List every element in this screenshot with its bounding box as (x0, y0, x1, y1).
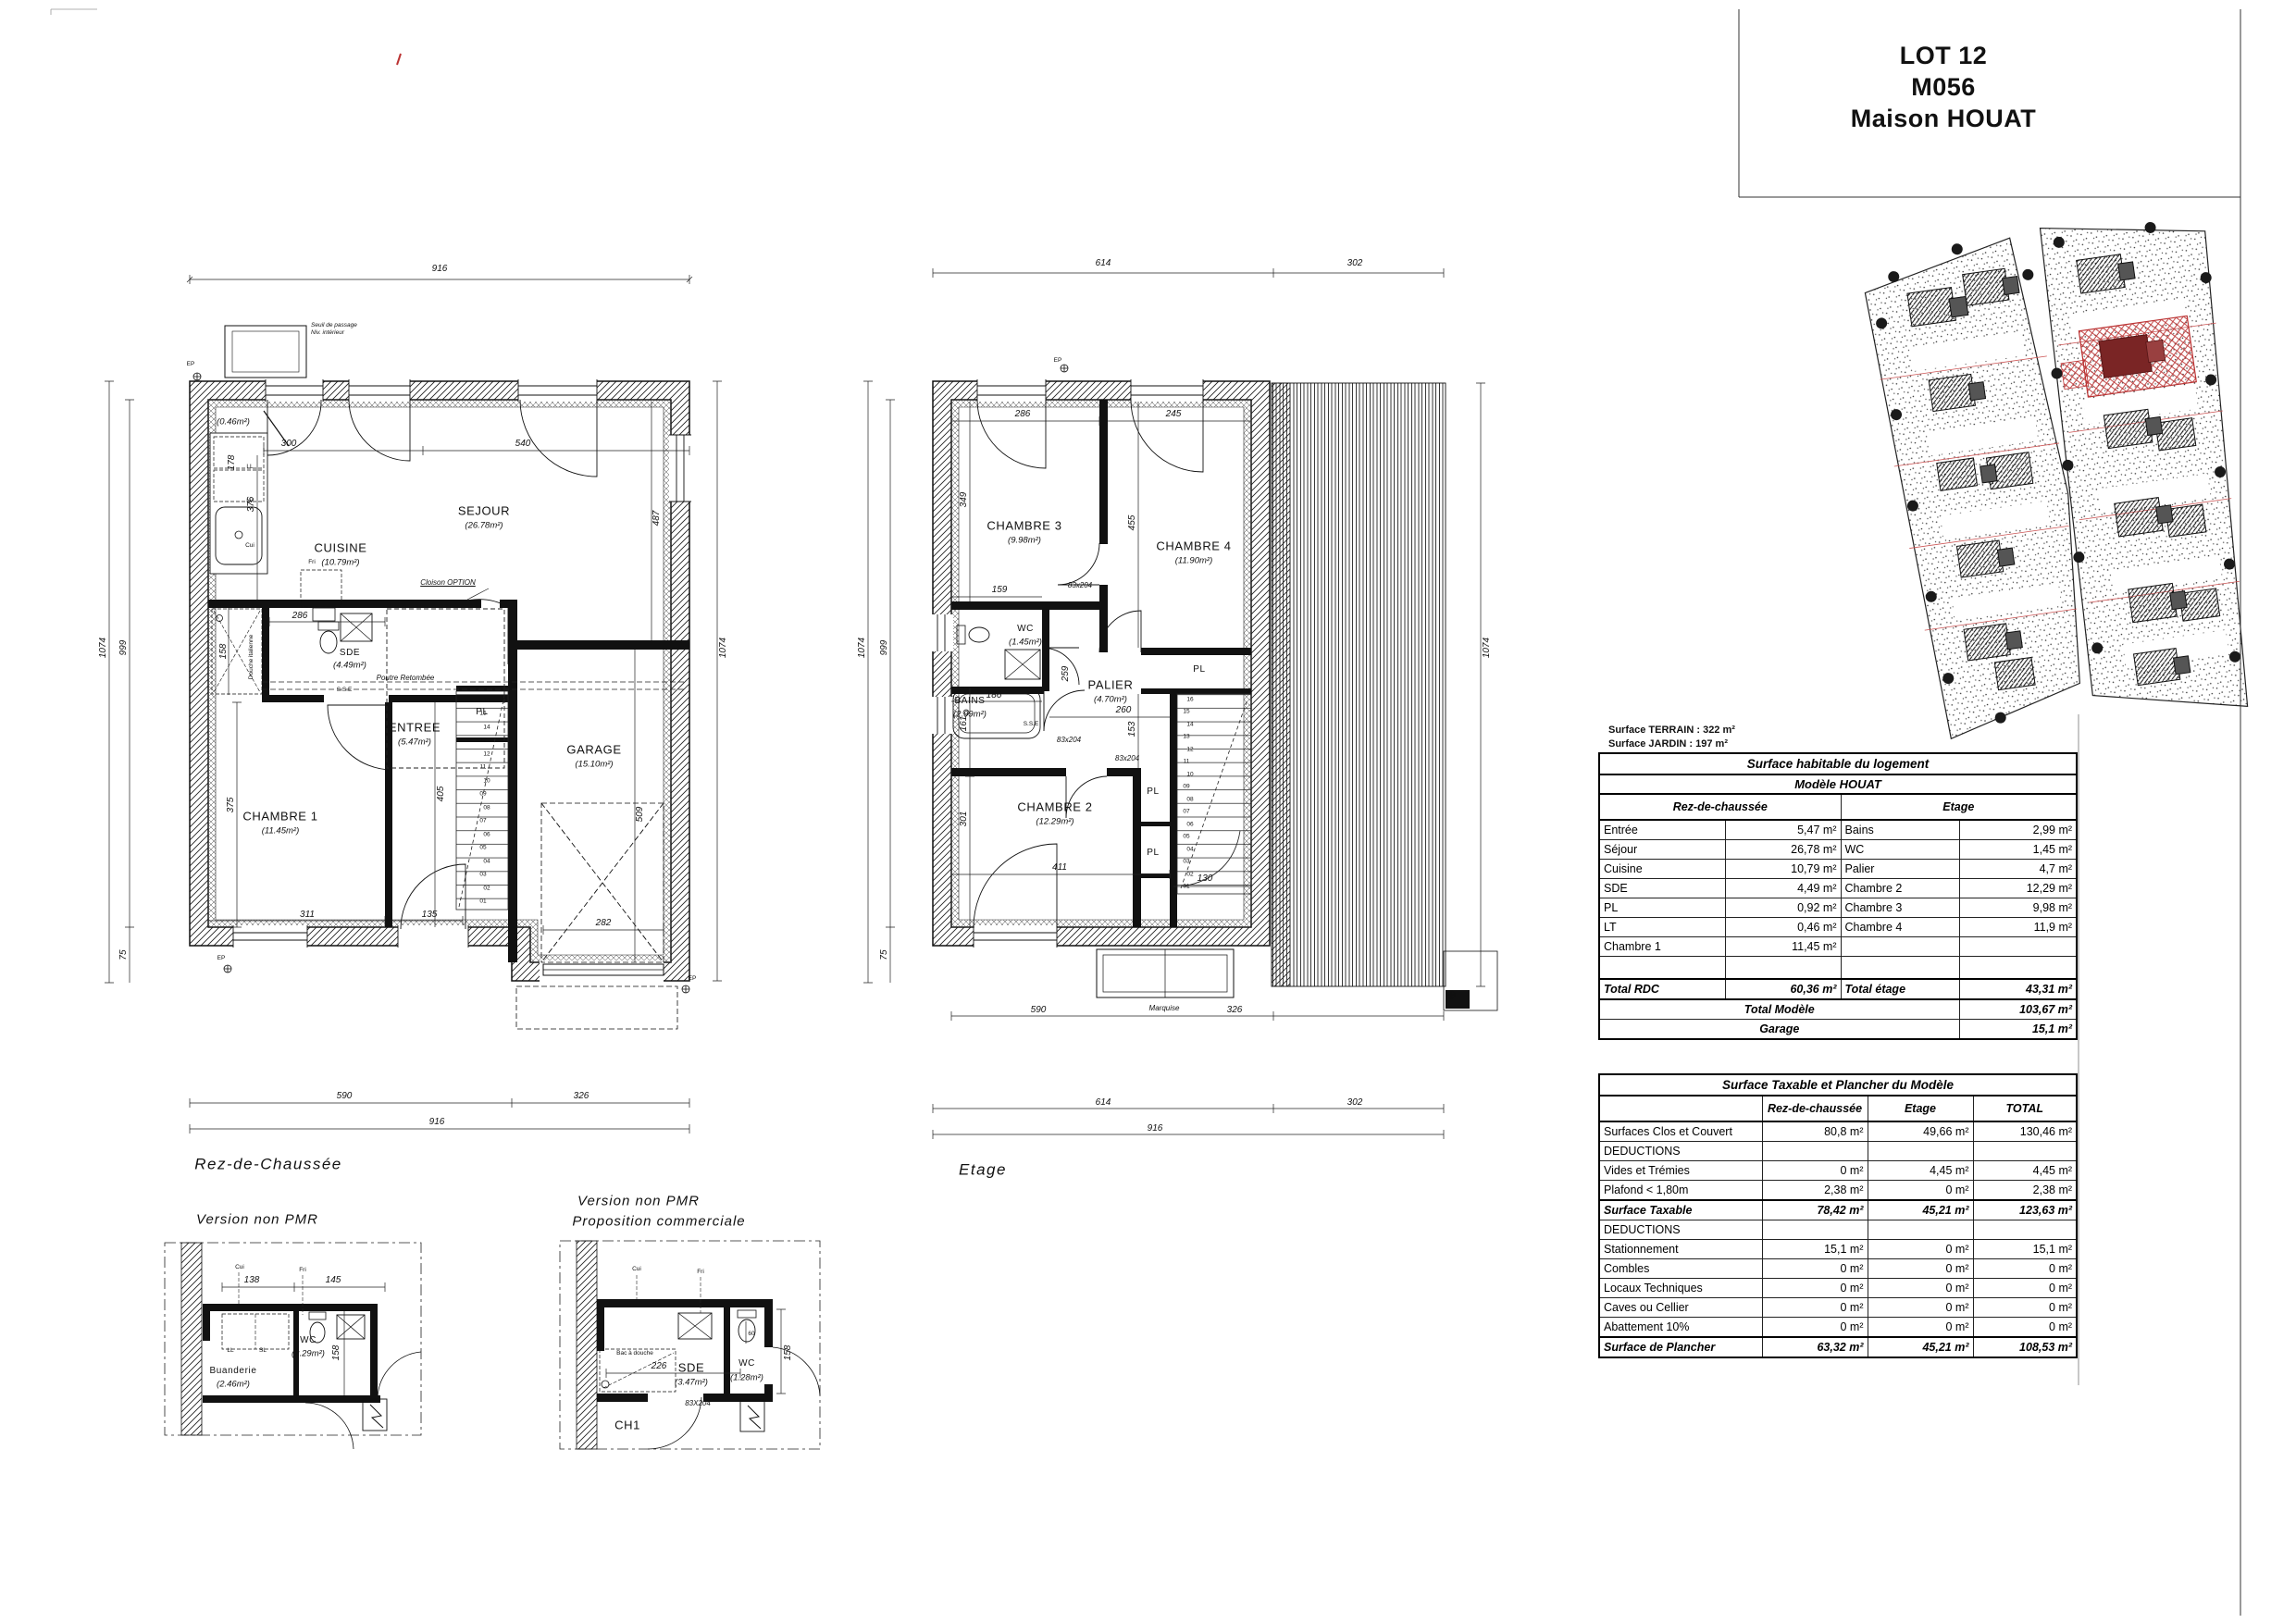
table-cell: Bains (1841, 820, 1959, 840)
table-cell (1762, 1220, 1868, 1240)
room-wc-d1: WC (300, 1336, 316, 1345)
label-ep-2: EP (217, 956, 226, 962)
table-row: Rez-de-chausséeEtageTOTAL (1599, 1096, 2077, 1121)
table-cell: 4,45 m² (1973, 1161, 2077, 1181)
table-cell: 0 m² (1973, 1279, 2077, 1298)
table-row: Vides et Trémies0 m²4,45 m²4,45 m² (1599, 1161, 2077, 1181)
table-row: Stationnement15,1 m²0 m²15,1 m² (1599, 1240, 2077, 1259)
label-cloison-option: Cloison OPTION (420, 579, 476, 587)
dim: 259 (1061, 666, 1071, 682)
table-cell (1868, 1220, 1973, 1240)
table-row: Surface Taxable et Plancher du Modèle (1599, 1074, 2077, 1096)
detail-proposition (560, 1241, 820, 1449)
table-cell: 15,1 m² (1959, 1020, 2077, 1040)
table-cell (1973, 1142, 2077, 1161)
dim: 226 (652, 1362, 667, 1371)
dim: 260 (1116, 706, 1132, 715)
label-cui-d2: Cui (632, 1267, 641, 1273)
label-door-1: 83x204 (1068, 582, 1092, 589)
stair-step-number: 04 (1186, 846, 1193, 852)
dim: 186 (987, 691, 1002, 700)
dim: 158 (219, 644, 229, 660)
table-cell: Caves ou Cellier (1599, 1298, 1762, 1318)
dim: 614 (1096, 1098, 1111, 1108)
stair-step-number: 07 (479, 818, 486, 824)
rdc-plan (105, 275, 722, 1134)
dim: 130 (1198, 874, 1213, 884)
dim: 376 (247, 497, 256, 513)
surface-taxable-table: Surface Taxable et Plancher du ModèleRez… (1598, 1073, 2078, 1358)
table-row: Caves ou Cellier0 m²0 m²0 m² (1599, 1298, 2077, 1318)
room-chambre3-area: (9.98m²) (1008, 536, 1041, 545)
table-row: LT0,46 m²Chambre 411,9 m² (1599, 918, 2077, 937)
dim: 138 (244, 1276, 260, 1285)
room-chambre1-area: (11.45m²) (262, 826, 299, 836)
stair-step-number: 16 (1186, 696, 1193, 702)
table-cell: 80,8 m² (1762, 1121, 1868, 1142)
table-row: Surface de Plancher63,32 m²45,21 m²108,5… (1599, 1337, 2077, 1357)
surface-terrain: Surface TERRAIN : 322 m² (1608, 724, 1735, 737)
label-ll-d1: LL (227, 1348, 233, 1355)
stair-step-number: 03 (1183, 859, 1189, 865)
table-cell: Abattement 10% (1599, 1318, 1762, 1338)
room-wc-d2-area: (1.28m²) (730, 1373, 763, 1382)
label-cui-d1: Cui (235, 1265, 244, 1271)
dim: 159 (992, 586, 1008, 595)
table-cell: 0 m² (1973, 1259, 2077, 1279)
stair-step-number: 07 (1183, 809, 1189, 815)
room-lt-area: (0.46m²) (217, 417, 250, 427)
table-cell: 63,32 m² (1762, 1337, 1868, 1357)
table-cell (1973, 1220, 2077, 1240)
dim: 916 (432, 265, 448, 274)
room-chambre2-area: (12.29m²) (1036, 817, 1074, 826)
table-cell: Total RDC (1599, 979, 1725, 999)
dim: 349 (960, 492, 969, 508)
table-row: Surfaces Clos et Couvert80,8 m²49,66 m²1… (1599, 1121, 2077, 1142)
table-cell: 2,38 m² (1973, 1181, 2077, 1201)
stair-step-number: 02 (1186, 871, 1193, 877)
stair-step-number: 03 (479, 872, 486, 878)
table-cell: Modèle HOUAT (1599, 774, 2077, 794)
room-buanderie-area: (2.46m²) (217, 1380, 250, 1389)
stair-step-number: 04 (483, 858, 490, 864)
table-row: Garage15,1 m² (1599, 1020, 2077, 1040)
table-cell: Rez-de-chaussée (1762, 1096, 1868, 1121)
table-cell: Entrée (1599, 820, 1725, 840)
table-cell: 4,49 m² (1725, 879, 1841, 898)
table-cell: 0 m² (1868, 1240, 1973, 1259)
label-fri-d1: Fri (299, 1268, 306, 1274)
dim: 286 (292, 612, 308, 621)
room-ch1-d2: CH1 (614, 1419, 640, 1431)
table-cell: LT (1599, 918, 1725, 937)
table-cell: 0,92 m² (1725, 898, 1841, 918)
dim: 1074 (719, 638, 728, 658)
room-entree-area: (5.47m²) (398, 737, 431, 747)
room-sejour: SEJOUR (458, 505, 510, 517)
room-sejour-area: (26.78m²) (465, 521, 503, 530)
table-cell: 4,45 m² (1868, 1161, 1973, 1181)
stair-step-number: 10 (1186, 771, 1193, 777)
table-cell: Chambre 3 (1841, 898, 1959, 918)
table-cell: 4,7 m² (1959, 860, 2077, 879)
dim: 282 (596, 919, 612, 928)
table-row: SDE4,49 m²Chambre 212,29 m² (1599, 879, 2077, 898)
table-row: Locaux Techniques0 m²0 m²0 m² (1599, 1279, 2077, 1298)
table-cell: Séjour (1599, 840, 1725, 860)
red-mark (397, 54, 401, 65)
table-cell: Garage (1599, 1020, 1959, 1040)
table-cell: 0 m² (1868, 1279, 1973, 1298)
table-cell: 0 m² (1762, 1298, 1868, 1318)
label-cui: Cui (245, 543, 254, 550)
stair-step-number: 14 (1186, 721, 1193, 727)
table-cell: 11,9 m² (1959, 918, 2077, 937)
caption-variant2-l2: Proposition commerciale (572, 1215, 745, 1229)
table-cell: 11,45 m² (1725, 937, 1841, 957)
room-palier: PALIER (1088, 679, 1134, 691)
table-cell: SDE (1599, 879, 1725, 898)
table-cell: 9,98 m² (1959, 898, 2077, 918)
table-cell: 0 m² (1762, 1318, 1868, 1338)
stair-step-number: 15 (479, 711, 486, 717)
dim: 590 (1031, 1006, 1047, 1015)
table-cell (1725, 957, 1841, 980)
stair-step-number: 01 (479, 898, 486, 905)
dim: 540 (515, 440, 531, 449)
model-name: Maison HOUAT (1805, 104, 2082, 135)
dim: 916 (429, 1118, 445, 1127)
table-cell: 0,46 m² (1725, 918, 1841, 937)
stair-step-number: 13 (1183, 734, 1189, 740)
dim: 326 (1227, 1006, 1243, 1015)
dim: 590 (337, 1092, 353, 1101)
label-door-d2: 83X204 (685, 1400, 711, 1407)
dim: 145 (326, 1276, 341, 1285)
room-sde-d2-area: (3.47m²) (675, 1378, 708, 1387)
room-chambre2: CHAMBRE 2 (1017, 801, 1092, 813)
site-surfaces: Surface TERRAIN : 322 m² Surface JARDIN … (1608, 724, 1735, 751)
dim: 286 (1015, 410, 1031, 419)
dim: 411 (1052, 863, 1067, 873)
dim: 158 (784, 1345, 793, 1361)
table-row: Total RDC60,36 m²Total étage43,31 m² (1599, 979, 2077, 999)
label-douche-italienne: Douche italienne (249, 635, 255, 679)
label-bac: Bac à douche (616, 1351, 653, 1357)
table-row: Abattement 10%0 m²0 m²0 m² (1599, 1318, 2077, 1338)
table-cell: Stationnement (1599, 1240, 1762, 1259)
stair-step-number: 06 (483, 831, 490, 837)
room-pl-bot: PL (1147, 849, 1159, 858)
room-wc-d2: WC (738, 1359, 755, 1369)
caption-rdc: Rez-de-Chaussée (194, 1157, 342, 1172)
dim: 326 (574, 1092, 590, 1101)
table-cell: 45,21 m² (1868, 1337, 1973, 1357)
stair-step-number: 01 (1183, 884, 1189, 890)
room-garage-area: (15.10m²) (575, 760, 613, 769)
stair-step-number: 12 (483, 750, 490, 757)
room-wc-d1-area: (2.29m²) (292, 1349, 325, 1358)
table-row: Entrée5,47 m²Bains2,99 m² (1599, 820, 2077, 840)
table-cell (1959, 957, 2077, 980)
table-cell: 78,42 m² (1762, 1200, 1868, 1220)
label-seuil-1: Seuil de passage (311, 322, 357, 329)
table-cell: 2,99 m² (1959, 820, 2077, 840)
label-ep-1: EP (187, 362, 195, 368)
surface-jardin: Surface JARDIN : 197 m² (1608, 737, 1735, 751)
caption-etage: Etage (959, 1162, 1007, 1178)
table-cell: Etage (1841, 794, 2077, 820)
table-cell: Vides et Trémies (1599, 1161, 1762, 1181)
label-door-2: 83x204 (1115, 755, 1139, 762)
table-cell: 49,66 m² (1868, 1121, 1973, 1142)
table-cell: Surface de Plancher (1599, 1337, 1762, 1357)
table-cell: Surface Taxable (1599, 1200, 1762, 1220)
table-row: DEDUCTIONS (1599, 1220, 2077, 1240)
table-cell: 2,38 m² (1762, 1181, 1868, 1201)
table-cell: PL (1599, 898, 1725, 918)
stair-step-number: 14 (483, 724, 490, 730)
dim: 405 (437, 787, 446, 802)
stair-step-number: 13 (479, 737, 486, 744)
label-door-3: 83x204 (1057, 737, 1081, 744)
table-cell: Palier (1841, 860, 1959, 879)
label-fri-d2: Fri (697, 1270, 704, 1276)
dim: 1074 (1483, 638, 1492, 658)
table-cell: 5,47 m² (1725, 820, 1841, 840)
table-row: Total Modèle103,67 m² (1599, 999, 2077, 1020)
table-cell: Locaux Techniques (1599, 1279, 1762, 1298)
table-cell (1599, 957, 1725, 980)
table-row: Chambre 111,45 m² (1599, 937, 2077, 957)
table-cell (1841, 937, 1959, 957)
table-cell: 43,31 m² (1959, 979, 2077, 999)
stair-step-number: 15 (1183, 709, 1189, 715)
table-cell: DEDUCTIONS (1599, 1220, 1762, 1240)
room-palier-area: (4.70m²) (1094, 695, 1127, 704)
label-ll: LL (246, 465, 253, 471)
table-cell: 12,29 m² (1959, 879, 2077, 898)
room-pl-mid: PL (1147, 787, 1159, 797)
table-cell: 130,46 m² (1973, 1121, 2077, 1142)
table-cell: Plafond < 1,80m (1599, 1181, 1762, 1201)
room-chambre4-area: (11.90m²) (1175, 556, 1212, 565)
table-row: Rez-de-chausséeEtage (1599, 794, 2077, 820)
table-cell: Surface Taxable et Plancher du Modèle (1599, 1074, 2077, 1096)
stair-step-number: 02 (483, 885, 490, 891)
table-cell: 108,53 m² (1973, 1337, 2077, 1357)
dim: 153 (1128, 722, 1137, 737)
table-cell: DEDUCTIONS (1599, 1142, 1762, 1161)
room-bains: BAINS (954, 697, 985, 706)
table-cell: 0 m² (1762, 1259, 1868, 1279)
stair-step-number: 11 (1184, 759, 1190, 765)
room-chambre3: CHAMBRE 3 (987, 520, 1061, 532)
dim: 60 (748, 1332, 754, 1338)
table-cell: 0 m² (1762, 1279, 1868, 1298)
surface-habitable-table: Surface habitable du logementModèle HOUA… (1598, 752, 2078, 1040)
room-entree: ENTREE (389, 722, 441, 734)
caption-variant1: Version non PMR (196, 1213, 318, 1227)
table-cell: Total étage (1841, 979, 1959, 999)
table-cell: 0 m² (1973, 1318, 2077, 1338)
dim: 487 (652, 511, 662, 527)
room-wc-etage-area: (1.45m²) (1009, 638, 1042, 647)
room-garage: GARAGE (566, 744, 621, 756)
table-cell: 45,21 m² (1868, 1200, 1973, 1220)
caption-variant2-l1: Version non PMR (577, 1195, 700, 1208)
stair-step-number: 09 (479, 791, 486, 798)
table-row: Surface habitable du logement (1599, 753, 2077, 774)
table-row: Plafond < 1,80m2,38 m²0 m²2,38 m² (1599, 1181, 2077, 1201)
dim: 158 (332, 1345, 341, 1361)
table-row: Séjour26,78 m²WC1,45 m² (1599, 840, 2077, 860)
dim: 509 (636, 807, 645, 823)
dim: 178 (228, 455, 237, 471)
plan-sheet: LOT 12 M056 Maison HOUAT Surface TERRAIN… (0, 0, 2296, 1623)
stair-step-number: 05 (479, 845, 486, 851)
table-cell: WC (1841, 840, 1959, 860)
table-cell: 0 m² (1762, 1161, 1868, 1181)
label-seuil: Seuil de passage Niv. intérieur (311, 322, 357, 337)
detail-non-pmr (165, 1243, 421, 1449)
stair-step-number: 08 (1186, 796, 1193, 802)
room-sde-area: (4.49m²) (333, 661, 366, 670)
room-chambre4: CHAMBRE 4 (1156, 540, 1231, 552)
table-cell: 103,67 m² (1959, 999, 2077, 1020)
dim: 135 (422, 911, 438, 920)
table-cell (1762, 1142, 1868, 1161)
dim: 245 (1166, 410, 1182, 419)
table-cell: Chambre 4 (1841, 918, 1959, 937)
table-cell: Combles (1599, 1259, 1762, 1279)
dim: 614 (1096, 259, 1111, 268)
label-ep-4: EP (1054, 358, 1062, 365)
stair-step-number: 10 (483, 777, 490, 784)
table-surface-habitable: Surface habitable du logementModèle HOUA… (1598, 752, 2077, 1040)
title-block: LOT 12 M056 Maison HOUAT (1805, 41, 2082, 134)
room-cuisine-area: (10.79m²) (321, 558, 359, 567)
label-fri: Fri (308, 560, 316, 566)
table-row: PL0,92 m²Chambre 39,98 m² (1599, 898, 2077, 918)
stair-step-number: 11 (480, 764, 487, 771)
room-cuisine: CUISINE (315, 542, 367, 554)
label-sl-d1: SL (259, 1348, 267, 1355)
model-code: M056 (1805, 72, 2082, 104)
table-cell: 10,79 m² (1725, 860, 1841, 879)
table-cell: Cuisine (1599, 860, 1725, 879)
table-cell (1841, 957, 1959, 980)
table-cell: 0 m² (1868, 1298, 1973, 1318)
label-sse-etage: S.S.E (1024, 722, 1039, 728)
table-cell: 0 m² (1868, 1259, 1973, 1279)
stair-step-number: 16 (483, 697, 490, 703)
dim: 1074 (99, 638, 108, 658)
dim: 311 (300, 911, 315, 920)
table-cell: Rez-de-chaussée (1599, 794, 1841, 820)
stair-step-number: 09 (1183, 784, 1189, 790)
label-poutre: Poutre Retombée (377, 675, 435, 682)
dim: 1074 (858, 638, 867, 658)
room-pl-top: PL (1193, 665, 1205, 675)
table-row: Modèle HOUAT (1599, 774, 2077, 794)
room-wc-etage: WC (1017, 625, 1034, 634)
table-cell: Total Modèle (1599, 999, 1959, 1020)
dim: 300 (281, 440, 297, 449)
stair-step-number: 05 (1183, 834, 1189, 840)
room-sde-d2: SDE (678, 1362, 705, 1374)
table-cell: 15,1 m² (1762, 1240, 1868, 1259)
table-cell: Surfaces Clos et Couvert (1599, 1121, 1762, 1142)
dim: 301 (960, 811, 969, 827)
label-marquise: Marquise (1149, 1005, 1180, 1012)
table-cell: Etage (1868, 1096, 1973, 1121)
dim: 455 (1128, 515, 1137, 531)
room-chambre1: CHAMBRE 1 (242, 811, 317, 823)
table-cell: 123,63 m² (1973, 1200, 2077, 1220)
dim: 75 (880, 949, 889, 960)
table-cell (1868, 1142, 1973, 1161)
table-cell: 0 m² (1868, 1318, 1973, 1338)
table-cell: TOTAL (1973, 1096, 2077, 1121)
table-cell: 0 m² (1973, 1298, 2077, 1318)
table-cell: 26,78 m² (1725, 840, 1841, 860)
table-surface-taxable: Surface Taxable et Plancher du ModèleRez… (1598, 1073, 2077, 1358)
dim: 75 (119, 949, 129, 960)
table-row: Cuisine10,79 m²Palier4,7 m² (1599, 860, 2077, 879)
label-sse-rdc: S.S.E (337, 688, 353, 694)
table-cell (1959, 937, 2077, 957)
dim: 302 (1347, 259, 1363, 268)
table-cell: 60,36 m² (1725, 979, 1841, 999)
stair-step-number: 06 (1186, 821, 1193, 827)
room-sde: SDE (340, 649, 360, 658)
dim: 375 (227, 798, 236, 813)
stair-step-number: 08 (483, 804, 490, 811)
table-row: DEDUCTIONS (1599, 1142, 2077, 1161)
label-ep-3: EP (689, 976, 697, 983)
label-seuil-2: Niv. intérieur (311, 329, 357, 337)
table-cell: 0 m² (1868, 1181, 1973, 1201)
dim: 916 (1148, 1124, 1163, 1134)
site-plan (1859, 205, 2271, 751)
table-cell: Surface habitable du logement (1599, 753, 2077, 774)
dim: 999 (119, 640, 129, 656)
table-row: Surface Taxable78,42 m²45,21 m²123,63 m² (1599, 1200, 2077, 1220)
table-cell: Chambre 1 (1599, 937, 1725, 957)
table-cell: Chambre 2 (1841, 879, 1959, 898)
stair-step-number: 12 (1186, 746, 1193, 752)
table-cell: 15,1 m² (1973, 1240, 2077, 1259)
table-row: Combles0 m²0 m²0 m² (1599, 1259, 2077, 1279)
table-row (1599, 957, 2077, 980)
room-buanderie: Buanderie (210, 1367, 257, 1376)
dim: 161 (960, 716, 969, 732)
table-cell: 1,45 m² (1959, 840, 2077, 860)
dim: 302 (1347, 1098, 1363, 1108)
table-cell (1599, 1096, 1762, 1121)
dim: 999 (880, 640, 889, 656)
lot-number: LOT 12 (1805, 41, 2082, 72)
